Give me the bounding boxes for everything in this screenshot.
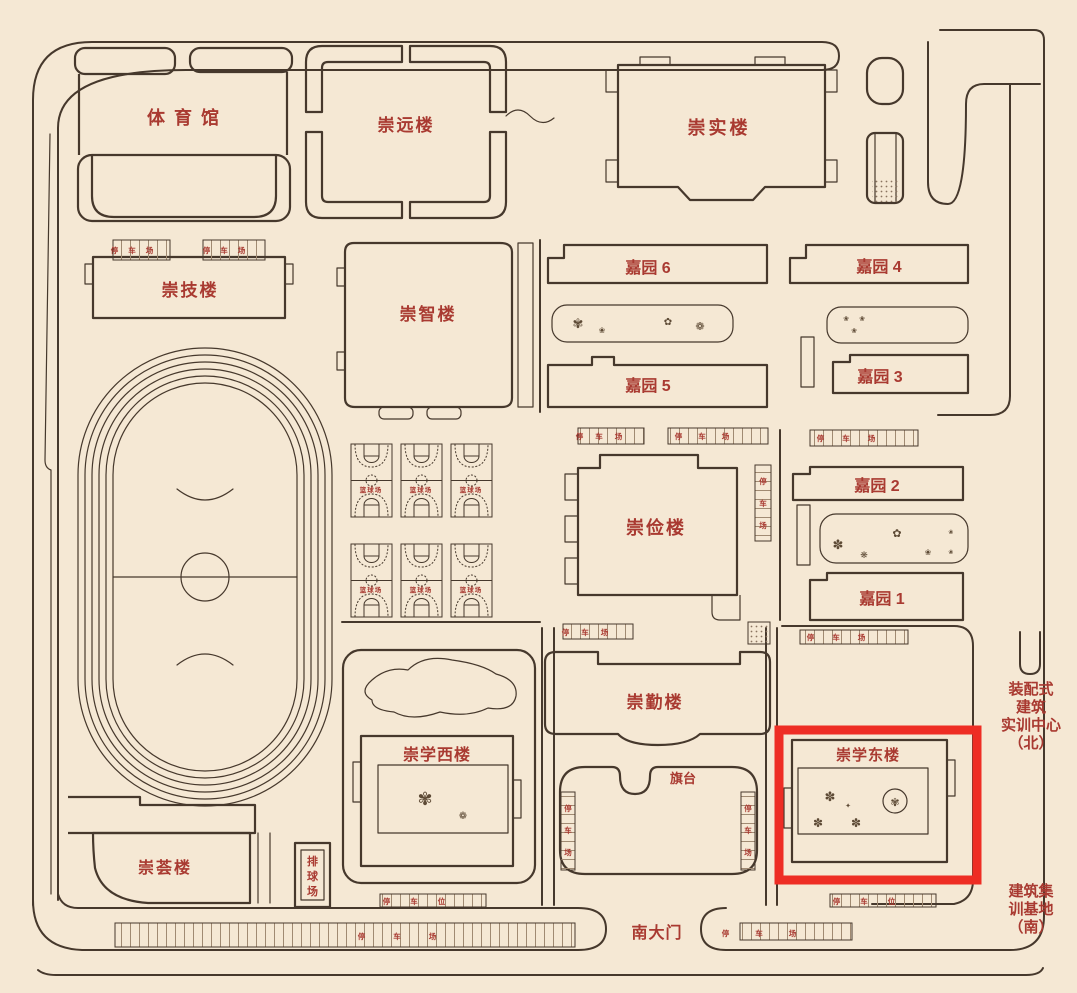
chongji-tab-l	[85, 264, 93, 284]
plant-icon: ✽	[825, 790, 836, 805]
volleyball-court: 排 球 场	[295, 843, 330, 907]
svg-text:实训中心: 实训中心	[1001, 716, 1061, 734]
road-top-left-boundary	[33, 42, 839, 905]
field-arc-bottom	[177, 654, 233, 665]
gym-hall-inner	[92, 155, 276, 217]
building-chongyuan: 崇远楼	[306, 46, 506, 218]
chongshi-tab-2	[606, 160, 618, 182]
flower-icon: ❀	[851, 327, 857, 335]
plant-icon: ✾	[417, 789, 432, 810]
parking-strip-chongxue-west-bottom: 停车位	[380, 894, 486, 907]
building-chongxue-east: 崇学东楼 ✽ ✦ ✽ ✽ ✾	[784, 740, 955, 862]
svg-text:（南）: （南）	[1008, 918, 1053, 936]
basketball-courts: 篮球场 篮球场 篮球场 篮球场 篮球场 篮球场	[351, 444, 492, 617]
svg-text:排: 排	[307, 854, 318, 868]
building-jiayuan2: 嘉园 2	[793, 467, 963, 500]
parking-strip-chongjian-2: 停车场	[668, 428, 768, 444]
chongxue-east-tab-r	[947, 760, 955, 796]
parking-strip-chongji-1: 停车场	[111, 240, 170, 260]
basketball-court	[451, 444, 492, 517]
svg-text:停车场: 停车场	[675, 431, 746, 441]
svg-text:停: 停	[564, 803, 572, 813]
chongxue-east-label: 崇学东楼	[836, 746, 900, 764]
svg-text:停车场: 停车场	[358, 931, 465, 941]
jiayuan3-label: 嘉园 3	[856, 367, 902, 386]
chongshi-tab-4	[825, 160, 837, 182]
svg-text:训基地: 训基地	[1008, 900, 1053, 918]
chonghui-top-bar	[68, 797, 255, 833]
chongzhi-tab-2	[337, 352, 345, 370]
basketball-label: 篮球场	[359, 585, 383, 594]
flower-icon: ❀	[843, 315, 849, 323]
jiayuan1-label: 嘉园 1	[858, 589, 904, 608]
svg-text:停: 停	[759, 476, 767, 486]
chongzhi-tab-1	[337, 268, 345, 286]
plant-icon: ✽	[833, 538, 844, 553]
svg-text:球: 球	[307, 869, 319, 883]
chongyuan-bracket-tr	[410, 46, 506, 112]
building-jiayuan3: 嘉园 3	[801, 337, 968, 393]
svg-text:（北）: （北）	[1008, 734, 1053, 752]
parking-strip-chongjian-1: 停车场	[576, 428, 644, 444]
garden-jiayuan21: ✽ ❋ ✿ ❀ ❀ ❀	[820, 514, 968, 563]
svg-text:停: 停	[744, 803, 752, 813]
flower-icon: ✿	[892, 527, 901, 540]
south-gate-label: 南大门	[631, 923, 682, 942]
chongshi-tab-5	[640, 57, 670, 65]
svg-text:车: 车	[744, 825, 752, 835]
road-right-stub	[1020, 632, 1040, 674]
pond-outline	[365, 658, 516, 717]
building-jiayuan5: 嘉园 5	[548, 357, 767, 407]
chongzhi-door-2	[427, 407, 461, 419]
flower-icon: ❁	[695, 320, 704, 333]
jiayuan4-label: 嘉园 4	[855, 257, 901, 276]
chongjian-label: 崇俭楼	[626, 517, 686, 538]
svg-text:车: 车	[759, 498, 767, 508]
chongxue-west-tab-l	[353, 762, 361, 802]
jiayuan3-connector	[801, 337, 814, 387]
svg-text:停车场: 停车场	[576, 431, 635, 441]
flower-icon: ❀	[859, 315, 865, 323]
building-chongjian: 崇俭楼	[565, 455, 740, 620]
flower-icon: ❀	[599, 326, 606, 335]
gym-label: 体 育 馆	[147, 107, 221, 128]
basketball-court	[351, 544, 392, 617]
pinwheel-icon: ✾	[890, 796, 899, 809]
plant-icon: ✾	[573, 317, 584, 332]
chongjian-foot	[712, 595, 740, 620]
flower-icon: ❀	[948, 529, 953, 536]
chongqin-label: 崇勤楼	[627, 692, 684, 712]
road-top-right-loop	[928, 42, 1040, 204]
chongxue-west-courtyard	[378, 765, 508, 833]
jiayuan6-label: 嘉园 6	[624, 258, 670, 277]
svg-text:停车位: 停车位	[383, 896, 466, 906]
sparkle-icon: ✦	[845, 802, 851, 810]
svg-text:场: 场	[564, 847, 572, 857]
chongshi-tab-1	[606, 70, 618, 92]
chongzhi-outline	[345, 243, 512, 407]
parking-strip-flag-right: 停 车 场	[741, 792, 755, 870]
building-chongji: 崇技楼	[85, 257, 293, 318]
parking-strip-jiayuan2: 停车场	[810, 430, 918, 446]
chongxue-west-tab-r	[513, 780, 521, 818]
svg-text:场: 场	[759, 520, 767, 530]
garden-jiayuan43: ❀ ❀ ❀	[827, 307, 968, 343]
basketball-label: 篮球场	[409, 585, 433, 594]
garden-jiayuan43-outline	[827, 307, 968, 343]
chongyuan-label: 崇远楼	[378, 115, 435, 135]
campus-map: 体 育 馆 崇远楼 崇实楼 崇技楼 崇智楼 嘉园	[0, 0, 1077, 993]
parking-strip-flag-left: 停 车 场	[561, 792, 575, 870]
chongyuan-bracket-bl	[306, 132, 402, 218]
svg-text:装配式: 装配式	[1007, 680, 1053, 698]
svg-text:停车场: 停车场	[203, 245, 256, 255]
flag-platform-outline	[560, 767, 757, 874]
building-chongzhi: 崇智楼	[337, 243, 533, 419]
road-squiggle	[506, 110, 554, 123]
basketball-label: 篮球场	[359, 485, 383, 494]
chongzhi-door-1	[379, 407, 413, 419]
chongzhi-annex	[518, 243, 533, 407]
building-jiayuan4: 嘉园 4	[790, 245, 968, 283]
gym-wing-top-right	[190, 48, 292, 72]
svg-text:停车位: 停车位	[833, 896, 916, 906]
asterisk-icon: ❋	[860, 551, 868, 561]
svg-text:场: 场	[307, 884, 318, 898]
flower-icon: ❀	[948, 549, 953, 556]
plant-icon: ✽	[851, 816, 861, 830]
chongyuan-bracket-br	[410, 132, 506, 218]
parking-strip-chongxue-east-top: 停车场	[800, 630, 908, 644]
kiosk-2-hatch	[872, 180, 898, 202]
gym-hall-outer	[78, 155, 290, 221]
svg-text:场: 场	[744, 847, 752, 857]
flower-icon: ❁	[459, 811, 467, 822]
svg-text:停车场: 停车场	[817, 433, 894, 443]
annotation-training-base: 建筑集 训基地 （南）	[1008, 882, 1054, 936]
chongshi-tab-3	[825, 70, 837, 92]
road-right-vertical	[938, 84, 1010, 415]
kiosk-1	[867, 58, 903, 104]
svg-text:车: 车	[564, 825, 572, 835]
campus-map-svg: 体 育 馆 崇远楼 崇实楼 崇技楼 崇智楼 嘉园	[0, 0, 1077, 993]
basketball-court	[451, 544, 492, 617]
svg-text:建筑: 建筑	[1016, 698, 1046, 716]
chongjian-door-3	[565, 558, 578, 584]
svg-text:停车场: 停车场	[111, 245, 164, 255]
basketball-court	[401, 444, 442, 517]
basketball-label: 篮球场	[459, 585, 483, 594]
building-chongshi: 崇实楼	[606, 57, 837, 200]
jiayuan1-connector	[797, 505, 810, 565]
basketball-label: 篮球场	[459, 485, 483, 494]
chongji-tab-r	[285, 264, 293, 284]
chongshi-tab-6	[755, 57, 785, 65]
svg-text:建筑集: 建筑集	[1008, 882, 1054, 900]
northeast-structures	[867, 58, 903, 203]
flower-icon: ✿	[664, 317, 672, 328]
chongxue-west-label: 崇学西楼	[403, 745, 471, 764]
road-bottom-outer	[38, 968, 1043, 975]
road-left-inner-fence	[45, 134, 51, 894]
chongxue-west-block	[343, 650, 535, 883]
basketball-label: 篮球场	[409, 485, 433, 494]
parking-strip	[115, 923, 575, 947]
chongjian-door-2	[565, 516, 578, 542]
field-arc-top	[177, 489, 233, 500]
jiayuan2-label: 嘉园 2	[853, 476, 899, 495]
flag-platform: 旗台 停 车 场 停 车 场	[560, 767, 757, 874]
svg-text:停车场: 停车场	[722, 928, 823, 938]
flower-icon: ❀	[925, 548, 932, 557]
parking-strip-chongjian-right: 停 车 场	[755, 465, 771, 541]
chongyuan-bracket-tl	[306, 46, 402, 112]
chongjian-door-1	[565, 474, 578, 500]
svg-text:停车场: 停车场	[807, 632, 884, 642]
parking-strips: 停车场 停车场 停车场 停车场 停车场 停车场 停车场 停车位	[111, 240, 936, 947]
basketball-court	[351, 444, 392, 517]
parking-strip-south-long: 停车场	[115, 923, 575, 947]
building-chongxue-west: 崇学西楼 ✾ ❁	[343, 650, 535, 883]
chongji-label: 崇技楼	[162, 280, 219, 300]
chongshi-label: 崇实楼	[688, 117, 751, 138]
chongqin-hatch	[748, 622, 770, 644]
building-gym: 体 育 馆	[75, 48, 292, 221]
flag-platform-label: 旗台	[670, 771, 696, 786]
basketball-court	[401, 544, 442, 617]
parking-strip-chongji-2: 停车场	[203, 240, 265, 260]
building-jiayuan6: 嘉园 6	[548, 245, 767, 283]
chongzhi-label: 崇智楼	[400, 304, 457, 324]
parking-strip-chongxue-east-bottom: 停车位	[830, 894, 936, 907]
parking-strip-south-right: 停车场	[722, 923, 852, 940]
chonghui-label: 崇荟楼	[138, 858, 192, 877]
annotation-assembly-center: 装配式 建筑 实训中心 （北）	[1001, 680, 1061, 752]
garden-jiayuan65: ✾ ❀ ✿ ❁	[552, 305, 733, 342]
jiayuan5-label: 嘉园 5	[624, 376, 670, 395]
running-track	[78, 348, 332, 806]
parking-strip-chongqin: 停车场	[562, 624, 633, 639]
building-chongqin: 崇勤楼	[545, 622, 770, 745]
building-chonghui: 崇荟楼	[68, 797, 255, 903]
chongxue-east-tab-l	[784, 788, 792, 828]
svg-text:停车场: 停车场	[562, 627, 621, 637]
plant-icon: ✽	[813, 816, 823, 830]
